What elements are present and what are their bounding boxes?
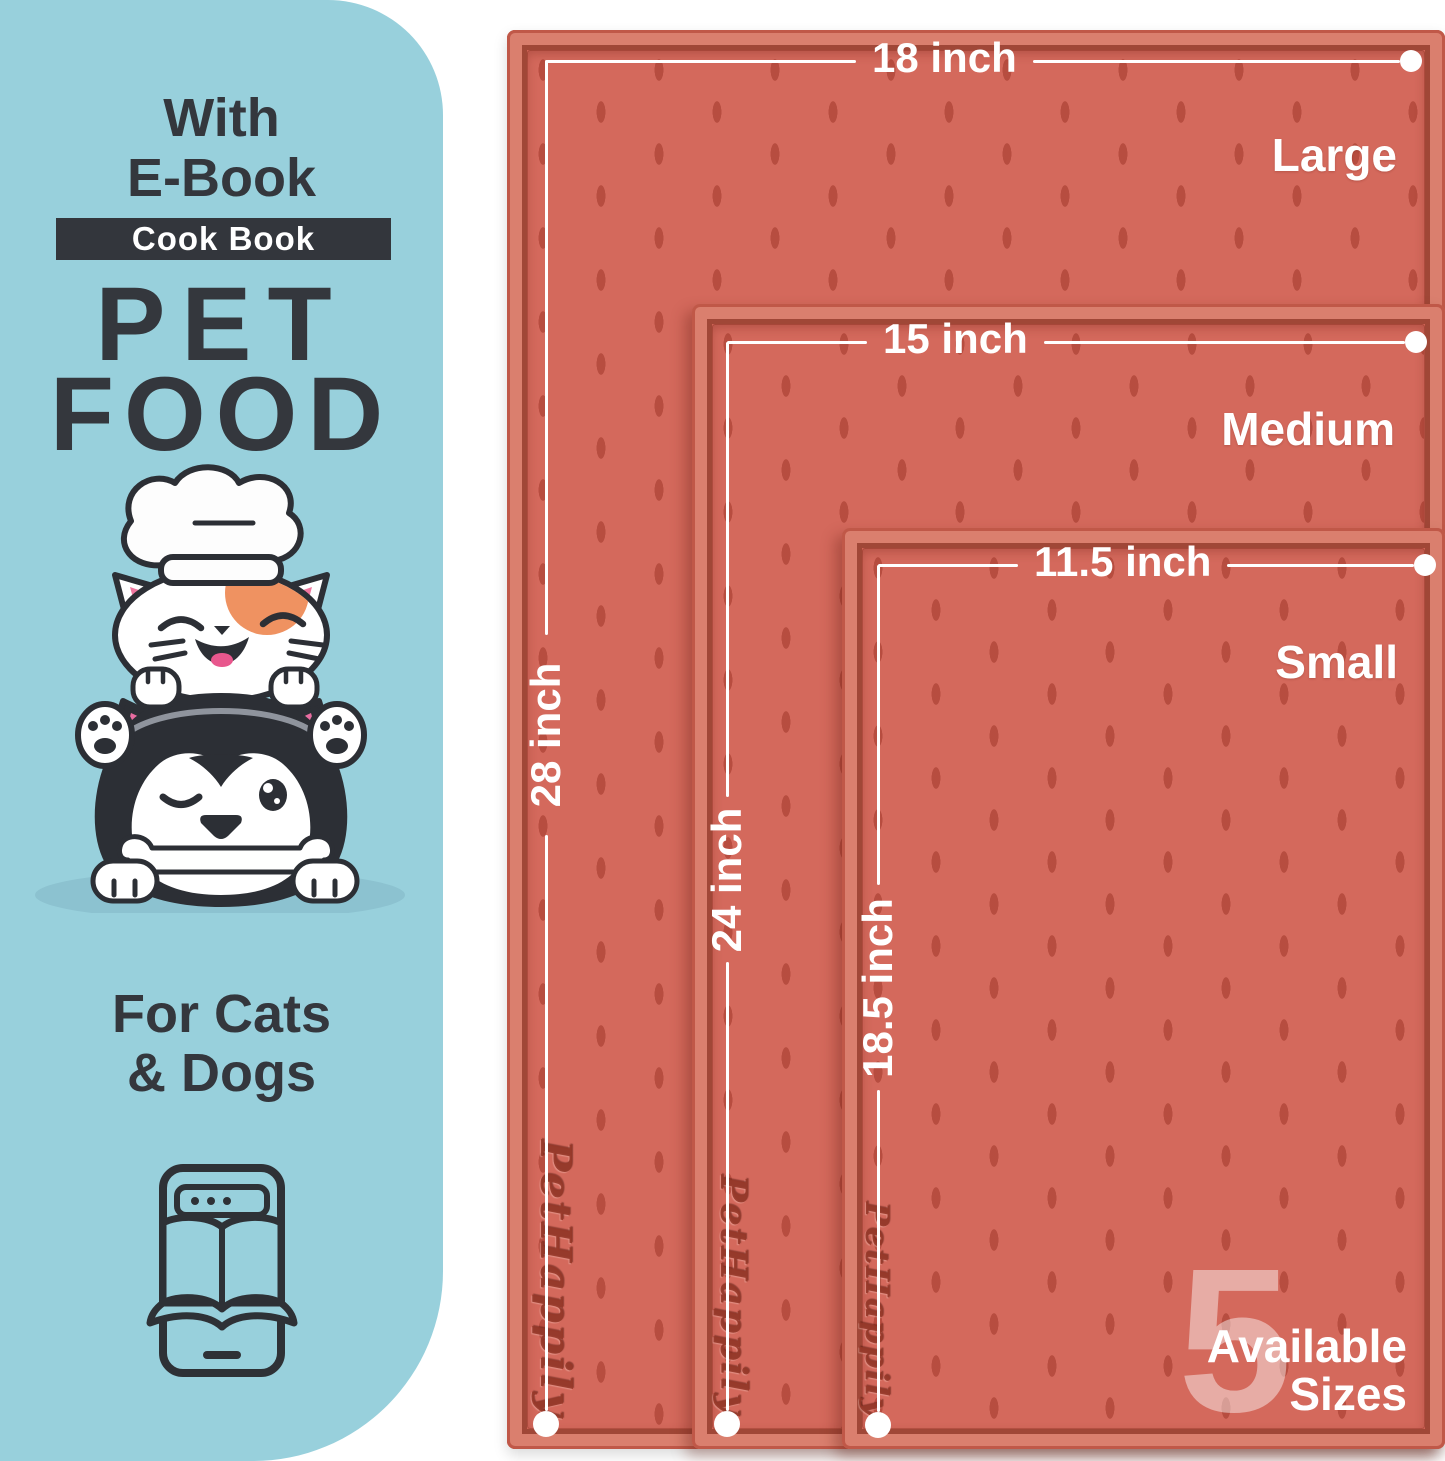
width-value-medium: 15 inch [867, 315, 1044, 363]
height-value-large: 28 inch [522, 663, 570, 808]
cookbook-badge: Cook Book [56, 218, 391, 260]
dimension-line [726, 962, 729, 1411]
dimension-endpoint-dot [1400, 50, 1422, 72]
dimension-endpoint-dot [533, 1411, 559, 1437]
left-info-panel: With E-Book Cook Book PET FOOD [0, 0, 443, 1461]
height-value-small: 18.5 inch [854, 898, 902, 1078]
height-label-wrap: 24 inch [714, 797, 740, 962]
height-dimension-large: 28 inch [533, 60, 559, 1437]
dimension-endpoint-dot [1414, 554, 1436, 576]
dimension-line [877, 1090, 880, 1412]
height-dimension-small: 18.5 inch [865, 565, 891, 1438]
dimension-line [726, 342, 729, 797]
dimension-line [545, 835, 548, 1411]
dimension-line [1227, 564, 1414, 567]
audience-text: For Cats & Dogs [0, 985, 443, 1104]
size-label-small: Small [1275, 635, 1398, 689]
audience-line-1: For Cats [0, 985, 443, 1044]
cat-chef [115, 467, 327, 701]
cat-chef-dog-illustration [15, 463, 435, 913]
title-food: FOOD [0, 362, 443, 467]
dimension-line [727, 341, 867, 344]
dimension-line [877, 565, 880, 885]
dimension-line [546, 60, 856, 63]
dimension-line [878, 564, 1018, 567]
dimension-endpoint-dot [714, 1411, 740, 1437]
size-label-medium: Medium [1221, 402, 1395, 456]
height-dimension-medium: 24 inch [714, 342, 740, 1437]
width-dimension-large: 18 inch [546, 48, 1422, 74]
cookbook-badge-label: Cook Book [132, 220, 315, 258]
width-dimension-small: 11.5 inch [878, 552, 1436, 578]
dimension-line [1033, 60, 1400, 63]
dimension-endpoint-dot [865, 1412, 891, 1438]
ebook-intro-text: With E-Book [0, 88, 443, 209]
height-label-wrap: 18.5 inch [865, 885, 891, 1090]
intro-line-2: E-Book [0, 148, 443, 208]
intro-line-1: With [0, 88, 443, 148]
dimension-endpoint-dot [1405, 331, 1427, 353]
height-value-medium: 24 inch [703, 807, 751, 952]
product-infographic: With E-Book Cook Book PET FOOD [0, 0, 1445, 1461]
available-line-2: Sizes [1207, 1370, 1407, 1418]
width-value-small: 11.5 inch [1018, 538, 1227, 586]
audience-line-2: & Dogs [0, 1044, 443, 1103]
size-label-large: Large [1272, 128, 1397, 182]
dimension-line [545, 60, 548, 635]
width-dimension-medium: 15 inch [727, 329, 1427, 355]
width-value-large: 18 inch [856, 34, 1033, 82]
dimension-line [1044, 341, 1405, 344]
available-line-1: Available [1207, 1322, 1407, 1370]
ebook-icon [137, 1163, 307, 1378]
available-sizes-label: Available Sizes [1207, 1322, 1407, 1419]
height-label-wrap: 28 inch [533, 635, 559, 835]
